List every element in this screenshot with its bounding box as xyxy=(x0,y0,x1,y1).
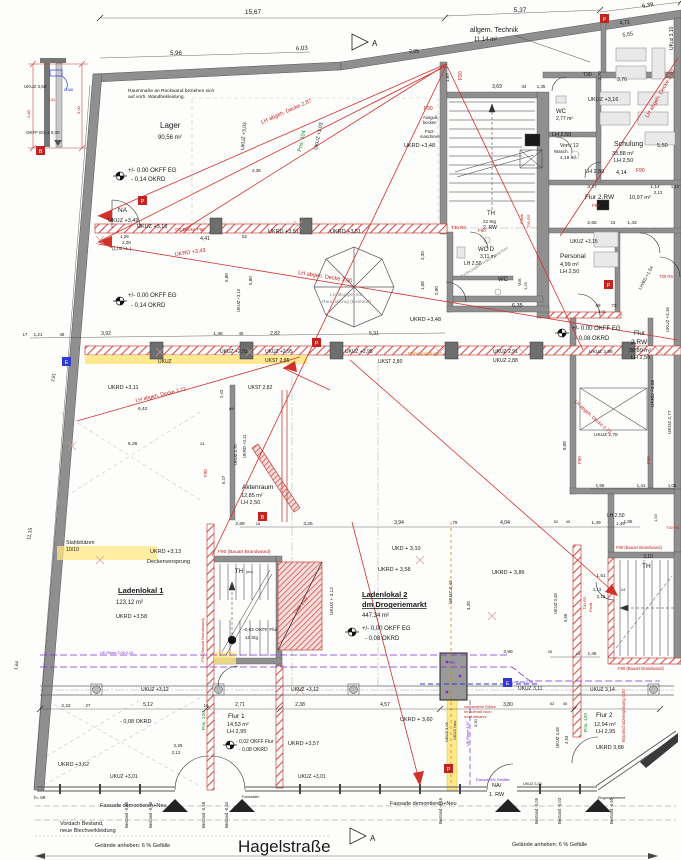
plan-label: 45 xyxy=(566,519,571,524)
plan-label: UKRD + 3,86 xyxy=(492,570,525,576)
plan-label: UKRD +3,51 xyxy=(268,229,299,235)
plan-label: UKUZ +3,10 xyxy=(236,288,241,312)
detail-section xyxy=(28,58,88,151)
plan-label: T30 RS xyxy=(451,225,466,230)
plan-label: UKUZ +3,15 xyxy=(570,239,598,245)
plan-label: 1,53 xyxy=(653,513,658,522)
plan-label: 1,95 xyxy=(596,483,605,488)
plan-label: 3,80 xyxy=(503,702,513,708)
plan-label: 5,55 xyxy=(622,31,633,38)
plan-label: 11,14 m² xyxy=(474,37,497,43)
plan-label: F90 xyxy=(577,456,582,464)
plan-label: NA/ xyxy=(492,783,502,789)
plan-label: Flur xyxy=(634,330,646,337)
plan-label: Personal xyxy=(560,253,586,260)
plan-label: F90 (Bauart Brandwand) xyxy=(618,666,664,671)
plan-label: 2,13 xyxy=(172,750,181,755)
plan-label: UKRD +3,48 xyxy=(404,143,435,149)
plan-label: Fassade demontieren+Neu xyxy=(390,801,457,807)
plan-label: T30 RS xyxy=(666,525,680,530)
plan-label: 4,19 m² xyxy=(560,155,577,161)
plan-label: LH 2,50 xyxy=(607,513,625,519)
plan-label: UKUZ +3,01 xyxy=(110,774,138,780)
plan-label: 24 xyxy=(200,441,205,446)
plan-label: maschinen xyxy=(420,134,441,139)
stair-right xyxy=(616,560,674,656)
plan-label: 4,41 xyxy=(200,236,210,242)
plan-label: Panik xyxy=(589,602,593,612)
svg-text:P: P xyxy=(141,199,145,205)
plan-label: 5,50 xyxy=(657,143,668,149)
plan-label: 3,99 xyxy=(503,649,513,655)
plan-label: 4,99 m² xyxy=(560,262,579,268)
plan-label: - 0,14 OKRD xyxy=(131,303,166,309)
plan-label: 4,57 xyxy=(380,702,390,708)
plan-label: 89 xyxy=(595,303,601,308)
plan-label: Eingangselement xyxy=(598,796,625,800)
plan-label: Bestand -0,05 xyxy=(534,797,539,824)
plan-label: F90 xyxy=(636,168,645,174)
plan-label: 2,43 xyxy=(219,389,224,398)
outer-walls xyxy=(34,10,681,790)
plan-label: 1,21 xyxy=(34,332,43,337)
plan-label: F90 xyxy=(592,203,600,208)
plan-label: 1,85 xyxy=(624,519,633,524)
plan-label: LH 2,95 xyxy=(596,729,615,735)
plan-label: 2,77 m² xyxy=(556,116,573,122)
plan-label: (eo) xyxy=(246,570,253,574)
plan-label: 45 xyxy=(563,701,568,706)
plan-label: 52 xyxy=(550,701,555,706)
plan-label: 123,12 m² xyxy=(116,600,143,606)
plan-label: UKRD +3,08 xyxy=(650,380,656,407)
plan-label: 1,49 xyxy=(616,521,625,526)
plan-label: Ladenlokal 1 xyxy=(118,586,163,595)
plan-label: 2,36 xyxy=(252,168,261,173)
plan-label: dm Drogeriemarkt xyxy=(362,600,427,609)
plan-label: OKFF EG ± 0,00 xyxy=(26,130,60,135)
plan-label: 2,01 xyxy=(598,309,607,314)
svg-text:P: P xyxy=(315,341,319,347)
plan-label: UKUZ +3,16 xyxy=(588,97,618,103)
plan-label: im Aufmaß noch xyxy=(464,710,491,714)
svg-text:E: E xyxy=(65,360,69,366)
plan-label: UKRD +3,49 xyxy=(174,248,206,258)
plan-label: UKUZ 3,14 xyxy=(590,687,615,693)
plan-marker: P xyxy=(604,280,613,289)
plan-label: UKUZ 3,48 xyxy=(553,593,558,614)
plan-label: 1,51 xyxy=(596,573,606,579)
plan-label: 26 xyxy=(548,649,553,654)
plan-label: 1,43 xyxy=(627,220,637,226)
plan-label: 1,08 xyxy=(420,281,425,290)
plan-label: 52 xyxy=(242,234,248,239)
plan-label: UKUZ +3,16 xyxy=(137,224,167,230)
plan-label: h= 69 xyxy=(34,795,46,800)
plan-label: Lager xyxy=(160,121,181,130)
plan-label: UKUZ 2,98 xyxy=(589,349,613,355)
utility-lines xyxy=(40,522,660,788)
plan-label: Fassade demontieren+Neu xyxy=(100,803,167,809)
plan-label: 5,69 xyxy=(563,613,568,622)
construction-helper-lines xyxy=(40,98,438,786)
plan-label: UKUZ +3,16 xyxy=(665,307,670,332)
plan-label: Bestand -0,16 xyxy=(438,797,443,824)
plan-svg: PBPPPPBEE 15,675,966,035,376,394,715,552… xyxy=(0,0,681,860)
plan-label: Vorr. xyxy=(517,277,522,286)
plan-label: UKUZ +2,95 xyxy=(265,349,293,355)
plan-label: 5,80 xyxy=(248,276,253,285)
plan-label: UKRD +3,57 xyxy=(288,741,319,747)
plan-label: T30 xyxy=(583,72,592,78)
floor-plan-drawing: PBPPPPBEE 15,675,966,035,376,394,715,552… xyxy=(0,0,681,860)
plan-label: Flur 2 xyxy=(596,712,613,719)
plan-label: LH 2,50 xyxy=(241,500,260,506)
plan-label: 5,31 xyxy=(369,331,379,337)
plan-label: UKUZ +3,03 xyxy=(240,122,248,150)
plan-label: OK Decke F90 xyxy=(175,227,205,232)
plan-label: UKUZ 2,70 xyxy=(233,444,238,465)
plan-label: UKUZ 3,11 xyxy=(518,686,543,692)
plan-label: TH xyxy=(642,563,651,570)
svg-text:B: B xyxy=(261,515,265,521)
plan-label: 11,15 xyxy=(26,527,34,540)
svg-text:P: P xyxy=(447,767,451,773)
plan-label: 17 xyxy=(23,332,28,337)
plan-label: Flur 2.RW xyxy=(585,194,615,201)
plan-label: Pos. 120 xyxy=(201,711,207,730)
plan-label: 2,85 xyxy=(409,49,419,55)
plan-label: - 0,08 OKRD xyxy=(120,719,152,725)
stair-central xyxy=(449,102,542,210)
plan-label: NA xyxy=(118,207,128,214)
canopy-lines xyxy=(35,806,676,836)
plan-label: 15 xyxy=(576,651,581,656)
plan-label: Bestand -0,50 xyxy=(124,801,129,828)
plan-label: UKUZ 2,91 xyxy=(493,349,518,355)
plan-label: 2,13 xyxy=(654,190,663,195)
plan-label: UKRD +3,11 xyxy=(108,385,139,391)
plan-label: UKRD +3,58 xyxy=(116,614,147,620)
plan-label: 3,51 xyxy=(48,98,55,102)
plan-label: 3,94 xyxy=(394,520,404,526)
plan-label: Fotokasten xyxy=(242,795,259,799)
plan-label: 1,13 xyxy=(593,587,602,592)
plan-label: A xyxy=(370,834,376,843)
plan-label: 2,71 xyxy=(235,702,245,708)
plan-label: 22 Stg xyxy=(483,219,497,224)
plan-label: Rauchabzug (Bestand) xyxy=(322,299,371,305)
plan-marker: P xyxy=(312,338,321,347)
plan-label: Hagelstraße xyxy=(238,837,331,856)
plan-label: - 0,08 OKRD xyxy=(575,336,610,342)
plan-label: Vordach Bestand, xyxy=(60,821,104,827)
plan-label: UKRD + 3,58 xyxy=(378,567,411,573)
plan-label: - 0,02 OKFF Flur xyxy=(236,739,274,745)
plan-label: 10/10 xyxy=(66,547,79,553)
plan-label: Pos. 120 xyxy=(583,713,589,732)
plan-label: -0,02 OKFF Flur xyxy=(243,627,278,633)
plan-marker: B xyxy=(36,146,45,155)
plan-label: 48 xyxy=(60,332,65,337)
plan-label: UKUZ +3,12 xyxy=(141,687,169,693)
plan-label: UK Leitung 2,48 xyxy=(506,680,533,684)
plan-label: 27 xyxy=(86,703,91,708)
plan-label: 12 Stg xyxy=(245,635,259,640)
plan-label: LH 2,95 xyxy=(227,729,246,735)
plan-label: LH 2,50 xyxy=(560,269,579,275)
plan-label: F90 (Bauart Brandwand) xyxy=(200,618,205,662)
plan-label: UK Rinne 3,06 0,15 xyxy=(100,651,133,655)
plan-label: 3,10 xyxy=(643,554,653,560)
plan-label: UKUZ 3,58 xyxy=(24,84,47,89)
plan-label: F90 xyxy=(478,228,486,233)
plan-label: 24 xyxy=(621,587,626,592)
technik-leader-line xyxy=(516,36,590,62)
plan-label: Pos. 104 xyxy=(297,130,307,152)
plan-label: 1,69 xyxy=(445,73,450,82)
plan-label: UKUZ +2,95 xyxy=(345,349,373,355)
plan-label: UKUZ 2,88 xyxy=(493,358,518,364)
plan-label: 1,23 xyxy=(523,281,528,290)
plan-label: UKUZ +3,03 xyxy=(313,122,325,151)
plan-label: 79 xyxy=(453,520,458,525)
plan-label: Bestand -0,44 xyxy=(224,801,229,828)
plan-label: UKUZ +3,49 xyxy=(108,218,138,224)
plan-label: 1,48 xyxy=(588,651,597,656)
plan-label: 4,04 xyxy=(500,520,510,526)
plan-label: 2,22 xyxy=(61,703,71,709)
plan-label: 447,34 m² xyxy=(362,613,389,619)
plan-label: LH 2,50 xyxy=(614,158,633,164)
plan-label: UKRD +3,51 xyxy=(330,229,361,235)
plan-label: - 0,08 OKRD xyxy=(239,747,268,753)
plan-label: 2,82 xyxy=(270,331,280,337)
plan-label: 6,35 xyxy=(512,303,523,309)
plan-label: UKRD +3,11 xyxy=(242,434,247,458)
plan-label: WC xyxy=(498,277,509,283)
plan-label: 5,37 xyxy=(514,7,527,14)
plan-marker: B xyxy=(258,512,267,521)
plan-label: Deckenversprung xyxy=(147,559,190,565)
plan-label: 3,27 xyxy=(587,184,597,190)
plan-label: 36,89 m² xyxy=(629,348,651,354)
plan-label: T30 RS xyxy=(582,596,587,610)
plan-label: becken xyxy=(423,120,437,125)
plan-label: 2,81 xyxy=(50,372,57,382)
plan-label: TH xyxy=(487,211,495,217)
plan-label: 1,41 xyxy=(637,483,646,488)
plan-label: WC xyxy=(556,109,567,115)
plan-label: Stahlstützen xyxy=(66,540,95,546)
plan-label: 5,12 xyxy=(143,702,153,708)
plan-label: 2,13 xyxy=(597,594,606,599)
plan-label: 5,96 xyxy=(170,51,182,57)
plan-label: 4,93 xyxy=(564,735,569,744)
plan-label: UKST 2,85 xyxy=(265,358,290,364)
plan-label: auf vorh. Wandbekleidung. xyxy=(128,94,185,100)
plan-label: 73 xyxy=(611,303,617,308)
level-markers xyxy=(113,172,569,749)
plan-label: UK Rinne 3,67 xyxy=(466,721,470,746)
plan-label: F90 (Bauart Brandwand) xyxy=(616,545,662,550)
plan-label: +/- 0,00 OKFF EG xyxy=(362,626,411,632)
plan-label: 3,00 xyxy=(76,105,81,114)
plan-label: Ø186 xyxy=(64,88,73,92)
plan-label: 90,56 m² xyxy=(158,135,182,141)
svg-text:P: P xyxy=(603,17,607,23)
plan-label: 3,76 xyxy=(617,77,627,83)
plan-label: Panik xyxy=(519,214,524,224)
plan-label: UKRD +3,62 xyxy=(58,762,89,768)
plan-label: 12,85 m² xyxy=(241,493,263,499)
plan-label: 15 xyxy=(611,220,616,225)
plan-label: 6,39 xyxy=(642,2,655,10)
stair-bottom-left xyxy=(220,564,272,656)
plan-label: Dehnungsfuge xyxy=(408,351,440,357)
plan-label: 15,67 xyxy=(245,9,262,16)
plan-label: F90 xyxy=(424,106,433,112)
plan-label: 1,64 xyxy=(13,660,20,670)
plan-label: UKUZ 3,03 xyxy=(444,721,449,742)
plan-label: LH/BD +1,54 xyxy=(637,265,654,291)
plan-label: Gelände anheben: 6 % Gefälle xyxy=(95,843,170,849)
plan-label: 3,25 xyxy=(303,521,313,527)
plan-label: UKUZ 3,43 xyxy=(448,580,454,604)
plan-label: 1,35 xyxy=(537,84,546,89)
plan-label: Raummaße an Rückwand beziehen sich xyxy=(128,88,214,94)
plan-label: 12,94 m² xyxy=(594,722,616,728)
plan-label: 33,88 m² xyxy=(612,151,634,157)
plan-label: T30 RS xyxy=(659,274,673,279)
plan-label: 2.RW xyxy=(631,339,648,346)
plan-label: Bestand -0,50 xyxy=(609,797,614,824)
plan-label: neue Blechverkleidung xyxy=(60,828,116,834)
plan-label: UKRD 3,88 xyxy=(596,745,624,751)
plan-label: 2,26 xyxy=(174,743,183,748)
plan-label: Rampe 6% Gefälle xyxy=(476,777,510,782)
plan-label: Lichtkuppel mit xyxy=(330,292,363,298)
plan-label: LH 2,50 xyxy=(552,132,571,138)
plan-label: 4,20 xyxy=(466,601,471,610)
plan-label: UKRD + 3,60 xyxy=(400,717,433,723)
plan-label: UKUZ xyxy=(158,359,172,365)
plan-label: 52 xyxy=(554,519,559,524)
plan-label: 6,03 xyxy=(296,46,309,53)
plan-label: Gelände anheben: 6 % Gefälle xyxy=(512,842,587,848)
plan-label: 6,36 xyxy=(128,441,138,447)
plan-label: UKuz 3,10 xyxy=(669,26,675,50)
plan-label: 5,47 xyxy=(221,475,226,484)
plan-label: F90 (Bauart Brandwand) xyxy=(218,549,271,555)
plan-label: WC D xyxy=(478,247,495,253)
plan-label: 3,69 xyxy=(492,84,502,90)
plan-label: UKD + 3,10 xyxy=(392,546,421,552)
plan-label: 69 xyxy=(229,406,234,411)
plan-label: UKUZ 3,48 xyxy=(555,727,560,748)
plan-label: Schulung xyxy=(614,141,643,148)
entrance-arrows xyxy=(162,799,611,812)
plan-label: UKUZ +2,93 xyxy=(220,349,248,355)
plan-label: UKUZ +3,12 xyxy=(291,687,319,693)
plan-label: Bestand -0,48 xyxy=(201,801,206,828)
plan-label: LH abgeh. Decke 2,87 xyxy=(260,98,312,126)
plan-label: Bestand -0,48 xyxy=(148,801,153,828)
plan-label: 3,92 xyxy=(101,331,111,337)
plan-label: - 0,08 OKRD xyxy=(365,636,400,642)
plan-label: 2,38 xyxy=(295,702,305,708)
plan-label: Ladenlokal 2 xyxy=(362,590,407,599)
plan-label: 16 xyxy=(204,703,209,708)
plan-label: +/- 0.00 OKFF EG xyxy=(128,168,177,174)
plan-label: UKUZ + 3,12 xyxy=(329,587,335,615)
plan-label: 1,36 xyxy=(213,331,223,337)
plan-marker: P xyxy=(138,196,147,205)
plan-label: 1. RW xyxy=(489,792,505,798)
section-markers xyxy=(350,34,368,844)
plan-label: UKUZ +3,01 xyxy=(298,774,326,780)
plan-label: 10,97 m² xyxy=(629,195,651,201)
plan-marker: P xyxy=(600,14,609,23)
plan-label: 2,90 xyxy=(434,286,439,295)
plan-label: 2,30 xyxy=(420,251,425,260)
plan-label: 3,90 xyxy=(473,718,478,727)
plan-label: F90 xyxy=(458,71,464,80)
plan-label: 2,88 xyxy=(26,109,31,118)
plan-label: 14,53 m² xyxy=(227,722,249,728)
plan-label: UKUZ Neu xyxy=(452,721,457,740)
plan-label: UKST 2,82 xyxy=(248,385,273,391)
plan-label: TH xyxy=(235,569,243,575)
plan-label: LH 2,50 xyxy=(585,169,604,175)
plan-label: 1,26 xyxy=(120,234,129,239)
svg-text:P: P xyxy=(607,283,611,289)
plan-label: LH abgeh. Decke 2,72 xyxy=(135,386,187,403)
top-wall-left xyxy=(93,62,341,82)
plan-label: Brandschutzverglasung G30 xyxy=(621,688,626,742)
plan-label: UKRD +3,13 xyxy=(150,549,181,555)
plan-label: nicht bekannt xyxy=(464,715,488,719)
plan-label: 2,28 xyxy=(122,240,131,245)
plan-label: (1,00 i.L.) xyxy=(112,246,132,251)
plan-label: LH abgeh. Decke 3,00 xyxy=(298,270,353,284)
plan-label: 18 xyxy=(256,521,261,526)
plan-label: RR xyxy=(449,660,455,665)
plan-label: T30 RS xyxy=(526,214,531,228)
plan-label: +/- 0.00 OKFF EG xyxy=(572,326,621,332)
plan-label: A xyxy=(372,39,378,48)
plan-marker: P xyxy=(444,764,453,773)
plan-label: allgem. Technik xyxy=(470,27,519,34)
plan-label: 2,65 xyxy=(587,220,597,226)
plan-label: UKST 2,80 xyxy=(378,359,403,365)
plan-label: 48 xyxy=(239,331,244,336)
plan-label: 2,89 xyxy=(235,521,245,527)
plan-label: 5,80 xyxy=(224,273,229,282)
plan-label: UKRD +3,48 xyxy=(410,317,441,323)
plan-label: 4,14 xyxy=(616,170,627,176)
plan-label: LH 2,56 xyxy=(631,355,650,361)
plan-label: Aktenraum xyxy=(242,484,273,491)
plan-label: Wasch. xyxy=(554,149,569,154)
plan-label: Flur 1 xyxy=(228,713,245,720)
plan-label: 6,42 xyxy=(138,406,148,412)
plan-label: 8,08 xyxy=(562,441,567,450)
storefront xyxy=(37,731,678,794)
plan-label: F90 xyxy=(203,469,208,477)
plan-label: F90 xyxy=(646,456,651,464)
plan-label: - 0,14 OKRD xyxy=(131,177,166,183)
